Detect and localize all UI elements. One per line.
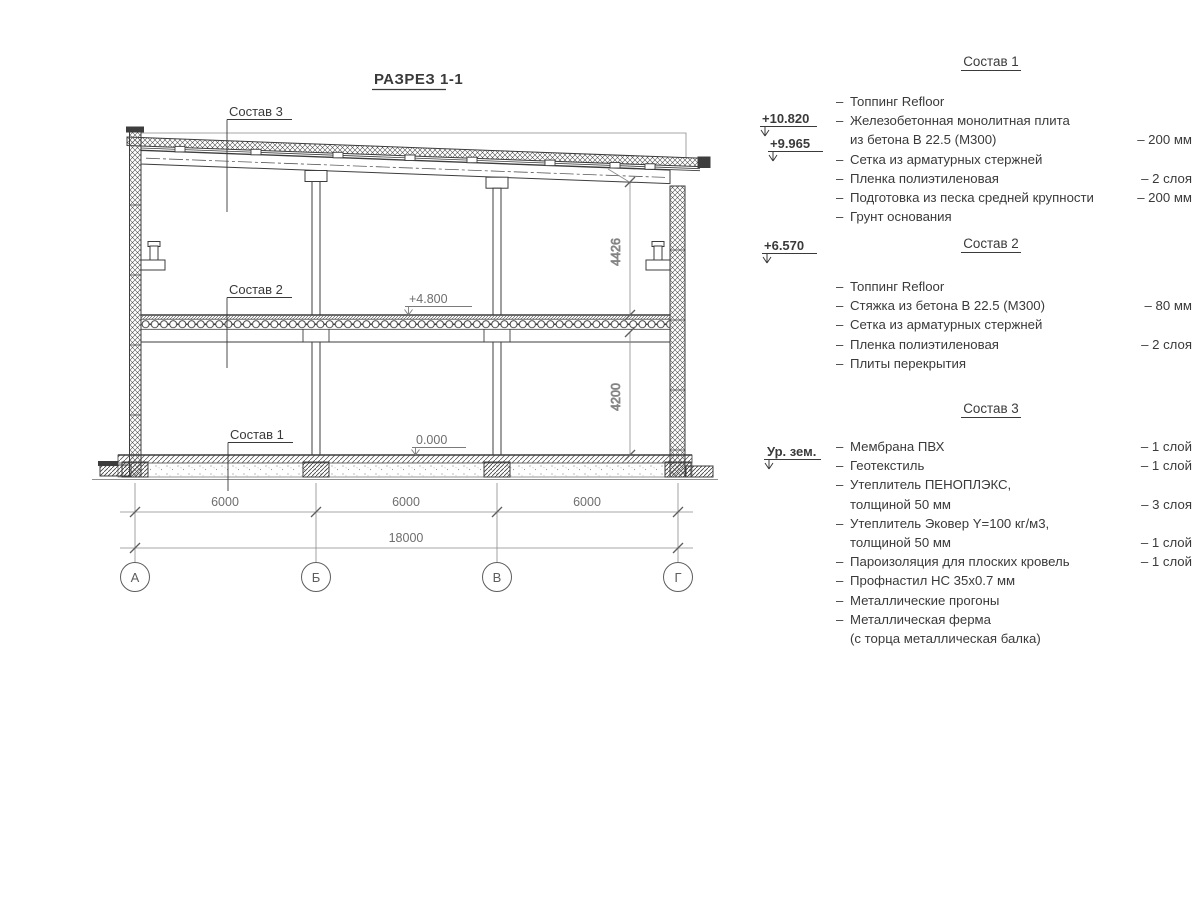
roof-fascia <box>698 157 710 168</box>
row-dash: – <box>836 437 850 456</box>
row-material: Утеплитель Эковер Y=100 кг/м3, <box>850 514 1192 533</box>
row-material: из бетона В 22.5 (М300) <box>850 130 1137 149</box>
row-quantity: – 1 слой <box>1141 437 1192 456</box>
composition-row: –Металлические прогоны <box>836 591 1192 610</box>
row-material: Металлическая ферма <box>850 610 1192 629</box>
elevation-plus4800-text: +4.800 <box>409 292 448 306</box>
composition-row: –Металлическая ферма <box>836 610 1192 629</box>
row-dash <box>836 533 850 552</box>
composition-row: –Мембрана ПВХ– 1 слой <box>836 437 1192 456</box>
row-dash: – <box>836 277 850 296</box>
row-dash: – <box>836 92 850 111</box>
row-material: Стяжка из бетона В 22.5 (М300) <box>850 296 1145 315</box>
row-material: (с торца металлическая балка) <box>850 629 1192 648</box>
crane-brackets <box>141 242 670 271</box>
middle-slab <box>141 315 670 342</box>
row-dash <box>836 629 850 648</box>
drawing-sheet: РАЗРЕЗ 1-1 <box>0 0 1200 900</box>
axis-b: Б <box>312 570 321 585</box>
composition-1-heading-text: Состав 1 <box>961 54 1021 71</box>
row-material: Мембрана ПВХ <box>850 437 1141 456</box>
composition-row: –Сетка из арматурных стержней <box>836 150 1192 169</box>
row-material: Плиты перекрытия <box>850 354 1192 373</box>
drawing-title: РАЗРЕЗ 1-1 <box>372 71 463 90</box>
composition-2-heading-text: Состав 2 <box>961 236 1021 253</box>
row-material: Профнастил НС 35х0.7 мм <box>850 571 1192 590</box>
composition-row: толщиной 50 мм– 1 слой <box>836 533 1192 552</box>
row-dash: – <box>836 188 850 207</box>
elevation-plus4800: +4.800 <box>405 292 473 315</box>
composition-row: –Подготовка из песка средней крупности– … <box>836 188 1192 207</box>
row-quantity: – 200 мм <box>1137 130 1192 149</box>
roof-assembly <box>127 137 710 184</box>
composition-row: –Плиты перекрытия <box>836 354 1192 373</box>
row-material: Пленка полиэтиленовая <box>850 335 1141 354</box>
row-dash: – <box>836 475 850 494</box>
composition-row: –Пароизоляция для плоских кровель– 1 сло… <box>836 552 1192 571</box>
composition-row: –Топпинг Refloor <box>836 277 1192 296</box>
dim-lower-height: 4200 <box>609 383 623 411</box>
composition-row: –Утеплитель ПЕНОПЛЭКС, <box>836 475 1192 494</box>
row-dash: – <box>836 335 850 354</box>
composition-3-heading-text: Состав 3 <box>961 401 1021 418</box>
row-dash: – <box>836 552 850 571</box>
axis-bubbles: А Б В Г <box>121 563 693 592</box>
row-quantity: – 1 слой <box>1141 533 1192 552</box>
mark-crane: +6.570 <box>762 238 817 263</box>
composition-row: –Грунт основания <box>836 207 1192 226</box>
mark-ground-level-text: Ур. зем. <box>767 444 816 459</box>
right-plinth <box>686 466 713 477</box>
mark-roof-high: +10.820 <box>760 111 817 136</box>
ground-floor <box>92 455 718 480</box>
axis-g: Г <box>674 570 681 585</box>
row-dash: – <box>836 456 850 475</box>
row-material: Сетка из арматурных стержней <box>850 315 1192 334</box>
dim-bay1: 6000 <box>211 495 239 509</box>
dim-bay2: 6000 <box>392 495 420 509</box>
row-dash: – <box>836 354 850 373</box>
row-material: толщиной 50 мм <box>850 533 1141 552</box>
row-quantity: – 1 слой <box>1141 552 1192 571</box>
row-material: Сетка из арматурных стержней <box>850 150 1192 169</box>
mark-roof-low: +9.965 <box>768 136 823 161</box>
composition-row: –Стяжка из бетона В 22.5 (М300)– 80 мм <box>836 296 1192 315</box>
dim-bay3: 6000 <box>573 495 601 509</box>
composition-1-rows: –Топпинг Refloor–Железобетонная монолитн… <box>836 92 1192 226</box>
row-quantity: – 200 мм <box>1137 188 1192 207</box>
composition-row: (с торца металлическая балка) <box>836 629 1192 648</box>
composition-3-rows: –Мембрана ПВХ– 1 слой–Геотекстиль– 1 сло… <box>836 437 1192 648</box>
row-dash: – <box>836 571 850 590</box>
row-dash: – <box>836 296 850 315</box>
leader-sostav1-text: Состав 1 <box>230 427 284 442</box>
dim-upper-height: 4426 <box>609 238 623 266</box>
row-dash: – <box>836 150 850 169</box>
composition-1-heading: Состав 1 <box>836 54 1146 69</box>
composition-row: –Топпинг Refloor <box>836 92 1192 111</box>
row-dash: – <box>836 315 850 334</box>
composition-row: –Геотекстиль– 1 слой <box>836 456 1192 475</box>
row-material: Грунт основания <box>850 207 1192 226</box>
composition-row: –Железобетонная монолитная плита <box>836 111 1192 130</box>
leader-sostav2-text: Состав 2 <box>229 282 283 297</box>
row-material: толщиной 50 мм <box>850 495 1141 514</box>
elevation-zero-text: 0.000 <box>416 433 447 447</box>
row-material: Железобетонная монолитная плита <box>850 111 1192 130</box>
composition-panel: Состав 1 –Топпинг Refloor–Железобетонная… <box>836 0 1192 900</box>
composition-2-rows: –Топпинг Refloor–Стяжка из бетона В 22.5… <box>836 277 1192 373</box>
row-material: Утеплитель ПЕНОПЛЭКС, <box>850 475 1192 494</box>
row-dash: – <box>836 169 850 188</box>
row-dash <box>836 130 850 149</box>
row-dash: – <box>836 514 850 533</box>
row-quantity: – 1 слой <box>1141 456 1192 475</box>
leader-sostav3-text: Состав 3 <box>229 104 283 119</box>
row-quantity: – 3 слоя <box>1141 495 1192 514</box>
row-dash: – <box>836 111 850 130</box>
row-quantity: – 80 мм <box>1145 296 1192 315</box>
composition-row: –Пленка полиэтиленовая– 2 слоя <box>836 335 1192 354</box>
row-material: Топпинг Refloor <box>850 277 1192 296</box>
mark-roof-low-text: +9.965 <box>770 136 810 151</box>
composition-row: –Пленка полиэтиленовая– 2 слоя <box>836 169 1192 188</box>
composition-row: –Профнастил НС 35х0.7 мм <box>836 571 1192 590</box>
composition-row: –Сетка из арматурных стержней <box>836 315 1192 334</box>
row-dash: – <box>836 591 850 610</box>
row-quantity: – 2 слоя <box>1141 335 1192 354</box>
row-dash: – <box>836 610 850 629</box>
composition-row: толщиной 50 мм– 3 слоя <box>836 495 1192 514</box>
mark-roof-high-text: +10.820 <box>762 111 809 126</box>
row-material: Подготовка из песка средней крупности <box>850 188 1137 207</box>
composition-row: из бетона В 22.5 (М300)– 200 мм <box>836 130 1192 149</box>
composition-3-heading: Состав 3 <box>836 401 1146 416</box>
elevation-zero: 0.000 <box>412 433 467 455</box>
row-quantity: – 2 слоя <box>1141 169 1192 188</box>
axis-a: А <box>131 570 140 585</box>
row-dash <box>836 495 850 514</box>
axis-v: В <box>493 570 502 585</box>
composition-row: –Утеплитель Эковер Y=100 кг/м3, <box>836 514 1192 533</box>
row-dash: – <box>836 207 850 226</box>
left-plinth <box>100 465 131 476</box>
row-material: Пароизоляция для плоских кровель <box>850 552 1141 571</box>
row-material: Пленка полиэтиленовая <box>850 169 1141 188</box>
row-material: Металлические прогоны <box>850 591 1192 610</box>
section-title-text: РАЗРЕЗ 1-1 <box>374 71 463 88</box>
dim-total: 18000 <box>389 531 424 545</box>
mark-ground-level: Ур. зем. <box>764 444 821 469</box>
row-material: Геотекстиль <box>850 456 1141 475</box>
composition-2-heading: Состав 2 <box>836 236 1146 251</box>
bottom-dimensions: 6000 6000 6000 18000 <box>120 483 693 562</box>
mark-crane-text: +6.570 <box>764 238 804 253</box>
row-material: Топпинг Refloor <box>850 92 1192 111</box>
